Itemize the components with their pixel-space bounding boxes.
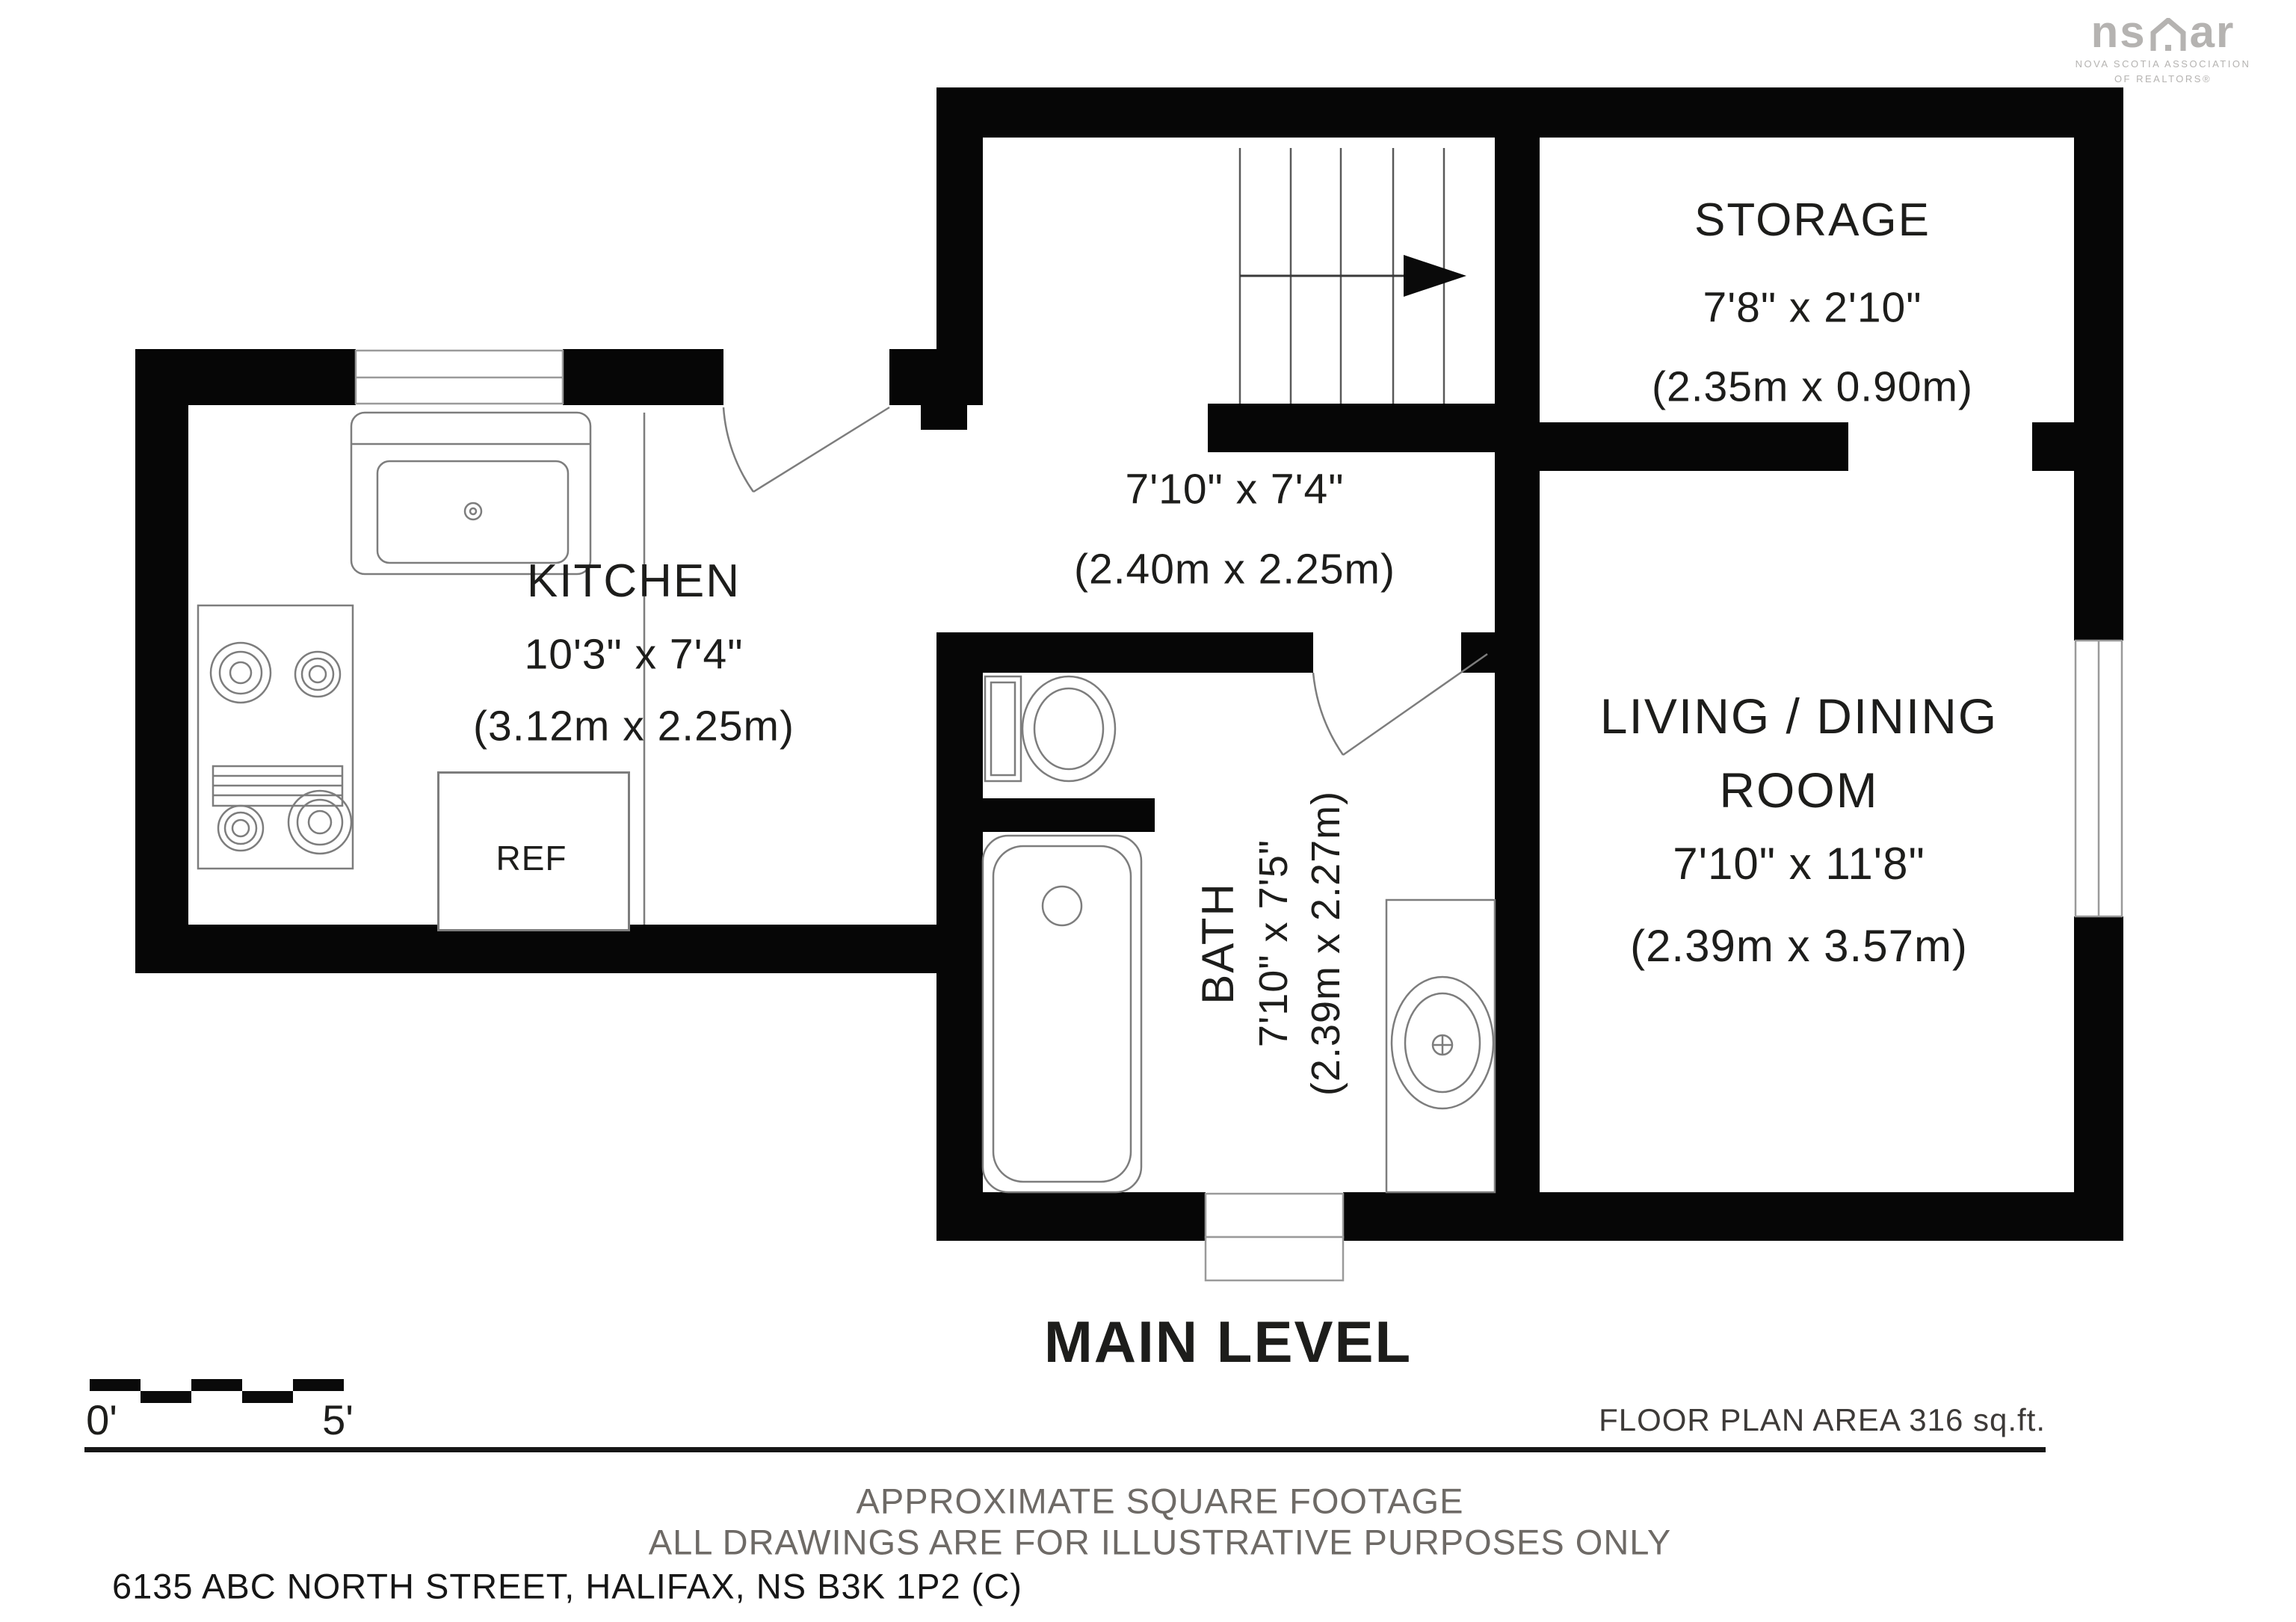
bath-dims-imperial: 7'10" x 7'5" [1247, 791, 1300, 1096]
disclaimer-line1: APPROXIMATE SQUARE FOOTAGE [857, 1484, 1464, 1519]
bath-door [1313, 654, 1487, 755]
bath-label-block: BATH 7'10" x 7'5" (2.39m x 2.27m) [1189, 791, 1352, 1096]
nsar-logo-mark: ns ar [2051, 12, 2275, 52]
bath-dims-metric: (2.39m x 2.27m) [1300, 791, 1352, 1096]
kitchen-dims-imperial: 10'3" x 7'4" [525, 634, 744, 676]
living-label-line1: LIVING / DINING [1600, 691, 1998, 741]
logo-house-icon [2149, 18, 2188, 52]
logo-text-left: ns [2091, 12, 2147, 52]
rear-door-stoop [1206, 1194, 1343, 1280]
logo-caption-line2: OF REALTORS® [2051, 72, 2275, 87]
bath-label: BATH [1189, 791, 1247, 1096]
living-window [2076, 641, 2122, 916]
storage-dims-imperial: 7'8" x 2'10" [1703, 287, 1922, 330]
fridge-label: REF [496, 841, 567, 875]
stairs-direction-arrow-icon [1404, 255, 1466, 297]
logo-caption-line1: NOVA SCOTIA ASSOCIATION [2051, 57, 2275, 72]
kitchen-dims-metric: (3.12m x 2.25m) [473, 706, 794, 748]
hall-dims-imperial: 7'10" x 7'4" [1126, 469, 1345, 511]
plan-linework [0, 0, 2296, 1622]
scale-bar [90, 1379, 344, 1403]
logo-text-right: ar [2190, 12, 2235, 52]
bathtub [983, 836, 1141, 1192]
scale-start-label: 0' [86, 1399, 117, 1441]
toilet [985, 676, 1115, 781]
disclaimer-line2: ALL DRAWINGS ARE FOR ILLUSTRATIVE PURPOS… [649, 1525, 1672, 1560]
floor-plan-area-note: FLOOR PLAN AREA 316 sq.ft. [1599, 1402, 2046, 1438]
living-label-line2: ROOM [1719, 765, 1878, 815]
footer-divider [84, 1447, 2046, 1452]
kitchen-label: KITCHEN [527, 558, 741, 605]
living-dims-imperial: 7'10" x 11'8" [1673, 842, 1925, 886]
property-address: 6135 ABC NORTH STREET, HALIFAX, NS B3K 1… [112, 1566, 1022, 1607]
entry-door [723, 407, 889, 492]
kitchen-window [356, 351, 563, 404]
storage-label: STORAGE [1694, 197, 1931, 244]
bath-sink [1386, 900, 1495, 1192]
page-title: MAIN LEVEL [1044, 1313, 1412, 1371]
nsar-logo: ns ar NOVA SCOTIA ASSOCIATION OF REALTOR… [2051, 12, 2275, 86]
stove [198, 605, 353, 869]
scale-end-label: 5' [322, 1399, 354, 1441]
living-dims-metric: (2.39m x 3.57m) [1630, 924, 1968, 969]
floor-plan-page: STORAGE 7'8" x 2'10" (2.35m x 0.90m) 7'1… [0, 0, 2296, 1622]
storage-dims-metric: (2.35m x 0.90m) [1652, 366, 1973, 409]
hall-dims-metric: (2.40m x 2.25m) [1074, 549, 1395, 591]
